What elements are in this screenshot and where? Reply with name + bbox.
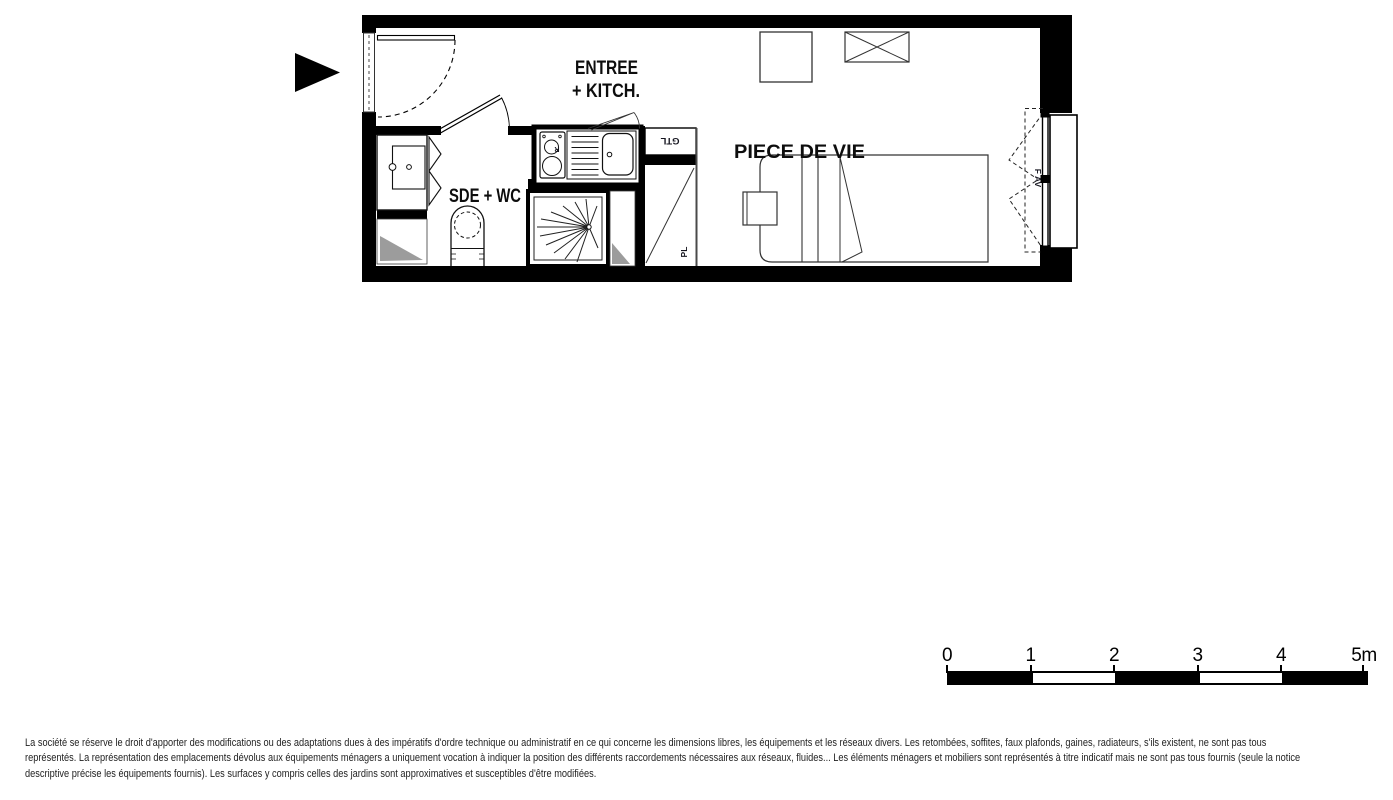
wall-top: [362, 15, 1072, 28]
floor-plan-page: R GTL PL: [0, 0, 1393, 800]
disclaimer-line-1: La société se réserve le droit d'apporte…: [25, 736, 1300, 751]
closet-label: PL: [679, 247, 689, 258]
floor-plan-svg: R GTL PL: [0, 0, 1393, 800]
wall-bottom: [362, 266, 1072, 282]
shower: [528, 191, 608, 266]
vanity: [377, 135, 427, 210]
wardrobe: [845, 32, 909, 62]
wall-right-upper: [1040, 15, 1072, 113]
shower-drain: [587, 225, 591, 229]
window: F AV: [1009, 109, 1077, 254]
label-kitch: + KITCH.: [572, 81, 640, 102]
label-entree: ENTREE: [575, 58, 638, 79]
wall-bathroom-door-jamb: [508, 126, 534, 135]
entrance-arrow: [295, 53, 340, 92]
nightstand-outline: [743, 192, 777, 225]
wall-below-vanity: [377, 210, 427, 219]
entrance-arrow-shape: [295, 53, 340, 92]
gtl-box: GTL: [645, 128, 696, 155]
window-exterior-ledge: [1050, 115, 1077, 248]
label-sde-wc: SDE + WC: [449, 186, 521, 207]
wall-left-corner: [362, 15, 376, 33]
disclaimer: La société se réserve le droit d'apporte…: [25, 736, 1300, 782]
label-piece-de-vie: PIECE DE VIE: [734, 142, 865, 163]
kitchen-unit: R: [534, 113, 641, 186]
entry-door: [364, 33, 456, 117]
entry-door-swing-arc: [378, 40, 455, 117]
gtl-label: GTL: [660, 135, 679, 146]
hob-label: R: [554, 145, 559, 152]
bathroom-door: [438, 95, 510, 133]
bed-outline: [760, 155, 988, 262]
entry-door-leaf: [378, 36, 455, 41]
wall-left: [362, 112, 376, 282]
window-hinge-top: [1041, 110, 1050, 118]
toilet-body: [451, 206, 484, 266]
bathroom-door-leaf: [438, 95, 502, 133]
folding-door: [429, 137, 441, 205]
bathroom-door-swing-arc: [502, 98, 510, 131]
nightstand: [743, 192, 777, 225]
wall-entry-bathroom: [376, 126, 441, 135]
disclaimer-line-3: descriptive précise les équipements four…: [25, 767, 1300, 782]
window-label: F AV: [1033, 169, 1043, 188]
toilet: [451, 206, 484, 266]
kitchen-hob: [540, 132, 565, 178]
window-hinge-bottom: [1041, 246, 1050, 254]
vanity-faucet-left: [389, 164, 396, 171]
vanity-faucet-right: [407, 165, 412, 170]
table: [760, 32, 812, 82]
disclaimer-line-2: représentés. La représentation des empla…: [25, 751, 1300, 766]
wall-below-gtl: [645, 155, 696, 165]
bed: [760, 155, 988, 262]
